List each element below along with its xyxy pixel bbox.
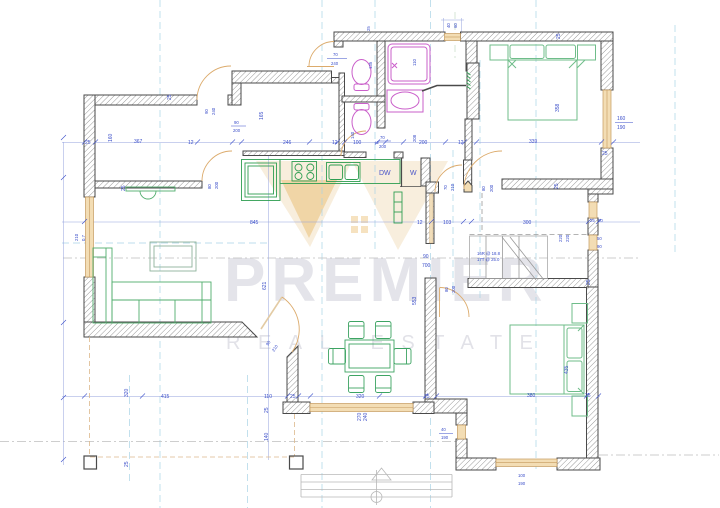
- svg-text:25: 25: [424, 394, 430, 400]
- svg-text:70: 70: [380, 135, 385, 140]
- svg-text:16R @ 18.8: 16R @ 18.8: [477, 251, 501, 256]
- svg-text:100: 100: [353, 140, 362, 146]
- svg-text:210: 210: [450, 183, 455, 191]
- svg-text:160: 160: [108, 133, 114, 142]
- svg-text:80: 80: [207, 184, 212, 189]
- svg-text:380: 380: [527, 393, 536, 399]
- svg-text:339: 339: [529, 139, 538, 145]
- svg-text:160: 160: [617, 116, 626, 122]
- svg-text:190: 190: [518, 481, 526, 486]
- svg-text:110: 110: [412, 59, 417, 66]
- svg-text:220: 220: [558, 234, 563, 242]
- svg-text:25: 25: [121, 185, 127, 191]
- svg-text:103: 103: [443, 220, 452, 226]
- svg-text:200: 200: [214, 181, 219, 189]
- svg-text:240: 240: [331, 61, 339, 66]
- svg-text:220: 220: [565, 234, 570, 242]
- svg-text:80: 80: [444, 287, 449, 292]
- svg-text:200: 200: [489, 184, 494, 192]
- svg-text:80: 80: [481, 186, 486, 191]
- svg-text:12: 12: [417, 220, 423, 226]
- svg-text:40: 40: [441, 427, 446, 432]
- svg-text:200: 200: [379, 144, 387, 149]
- svg-text:17T @ 25.0: 17T @ 25.0: [477, 257, 500, 262]
- svg-text:435: 435: [564, 365, 570, 374]
- svg-text:25: 25: [264, 407, 270, 413]
- svg-text:40: 40: [446, 23, 451, 28]
- svg-text:200: 200: [451, 285, 456, 293]
- svg-text:358: 358: [555, 103, 561, 112]
- svg-text:90: 90: [204, 109, 209, 114]
- svg-text:12: 12: [188, 140, 194, 146]
- svg-text:DW: DW: [379, 170, 391, 177]
- svg-text:90: 90: [597, 244, 602, 249]
- svg-text:700: 700: [422, 263, 431, 269]
- svg-text:320: 320: [124, 388, 130, 397]
- svg-text:240: 240: [363, 412, 369, 421]
- svg-text:200: 200: [233, 128, 241, 133]
- svg-text:70: 70: [443, 185, 448, 190]
- svg-text:845: 845: [250, 220, 259, 226]
- svg-text:60: 60: [453, 23, 458, 28]
- svg-text:100: 100: [518, 473, 526, 478]
- svg-text:50: 50: [597, 236, 602, 241]
- svg-text:553: 553: [412, 296, 418, 305]
- svg-text:190: 190: [441, 435, 449, 440]
- svg-text:25: 25: [290, 394, 296, 400]
- svg-text:367: 367: [134, 139, 143, 145]
- svg-text:135: 135: [368, 61, 373, 69]
- svg-text:25: 25: [556, 33, 562, 39]
- svg-text:621: 621: [262, 281, 268, 290]
- svg-text:0,7: 0,7: [81, 234, 86, 241]
- svg-text:90: 90: [234, 120, 239, 125]
- svg-text:25: 25: [585, 393, 591, 399]
- svg-text:246: 246: [283, 140, 292, 146]
- svg-text:415: 415: [161, 394, 170, 400]
- svg-text:208: 208: [412, 134, 417, 142]
- svg-text:25: 25: [124, 461, 130, 467]
- svg-text:300: 300: [523, 220, 532, 226]
- svg-text:W: W: [410, 170, 417, 177]
- svg-text:210: 210: [74, 233, 79, 241]
- svg-text:140: 140: [350, 131, 355, 139]
- svg-text:25: 25: [366, 26, 371, 31]
- svg-text:200: 200: [419, 140, 428, 146]
- svg-text:320: 320: [356, 394, 365, 400]
- svg-text:140: 140: [264, 432, 270, 441]
- svg-text:25: 25: [167, 94, 173, 100]
- svg-text:25: 25: [554, 183, 560, 189]
- svg-text:240: 240: [211, 107, 216, 115]
- svg-text:190: 190: [617, 125, 626, 131]
- svg-text:165: 165: [259, 111, 265, 120]
- svg-text:12: 12: [332, 140, 338, 146]
- svg-text:25: 25: [85, 140, 91, 146]
- svg-text:25: 25: [586, 279, 592, 285]
- svg-text:12: 12: [458, 140, 464, 146]
- svg-text:110: 110: [264, 394, 272, 400]
- svg-text:90: 90: [598, 218, 603, 223]
- svg-text:70: 70: [333, 52, 338, 57]
- svg-text:90: 90: [423, 254, 429, 260]
- svg-text:25: 25: [590, 218, 595, 223]
- svg-text:25: 25: [602, 151, 608, 157]
